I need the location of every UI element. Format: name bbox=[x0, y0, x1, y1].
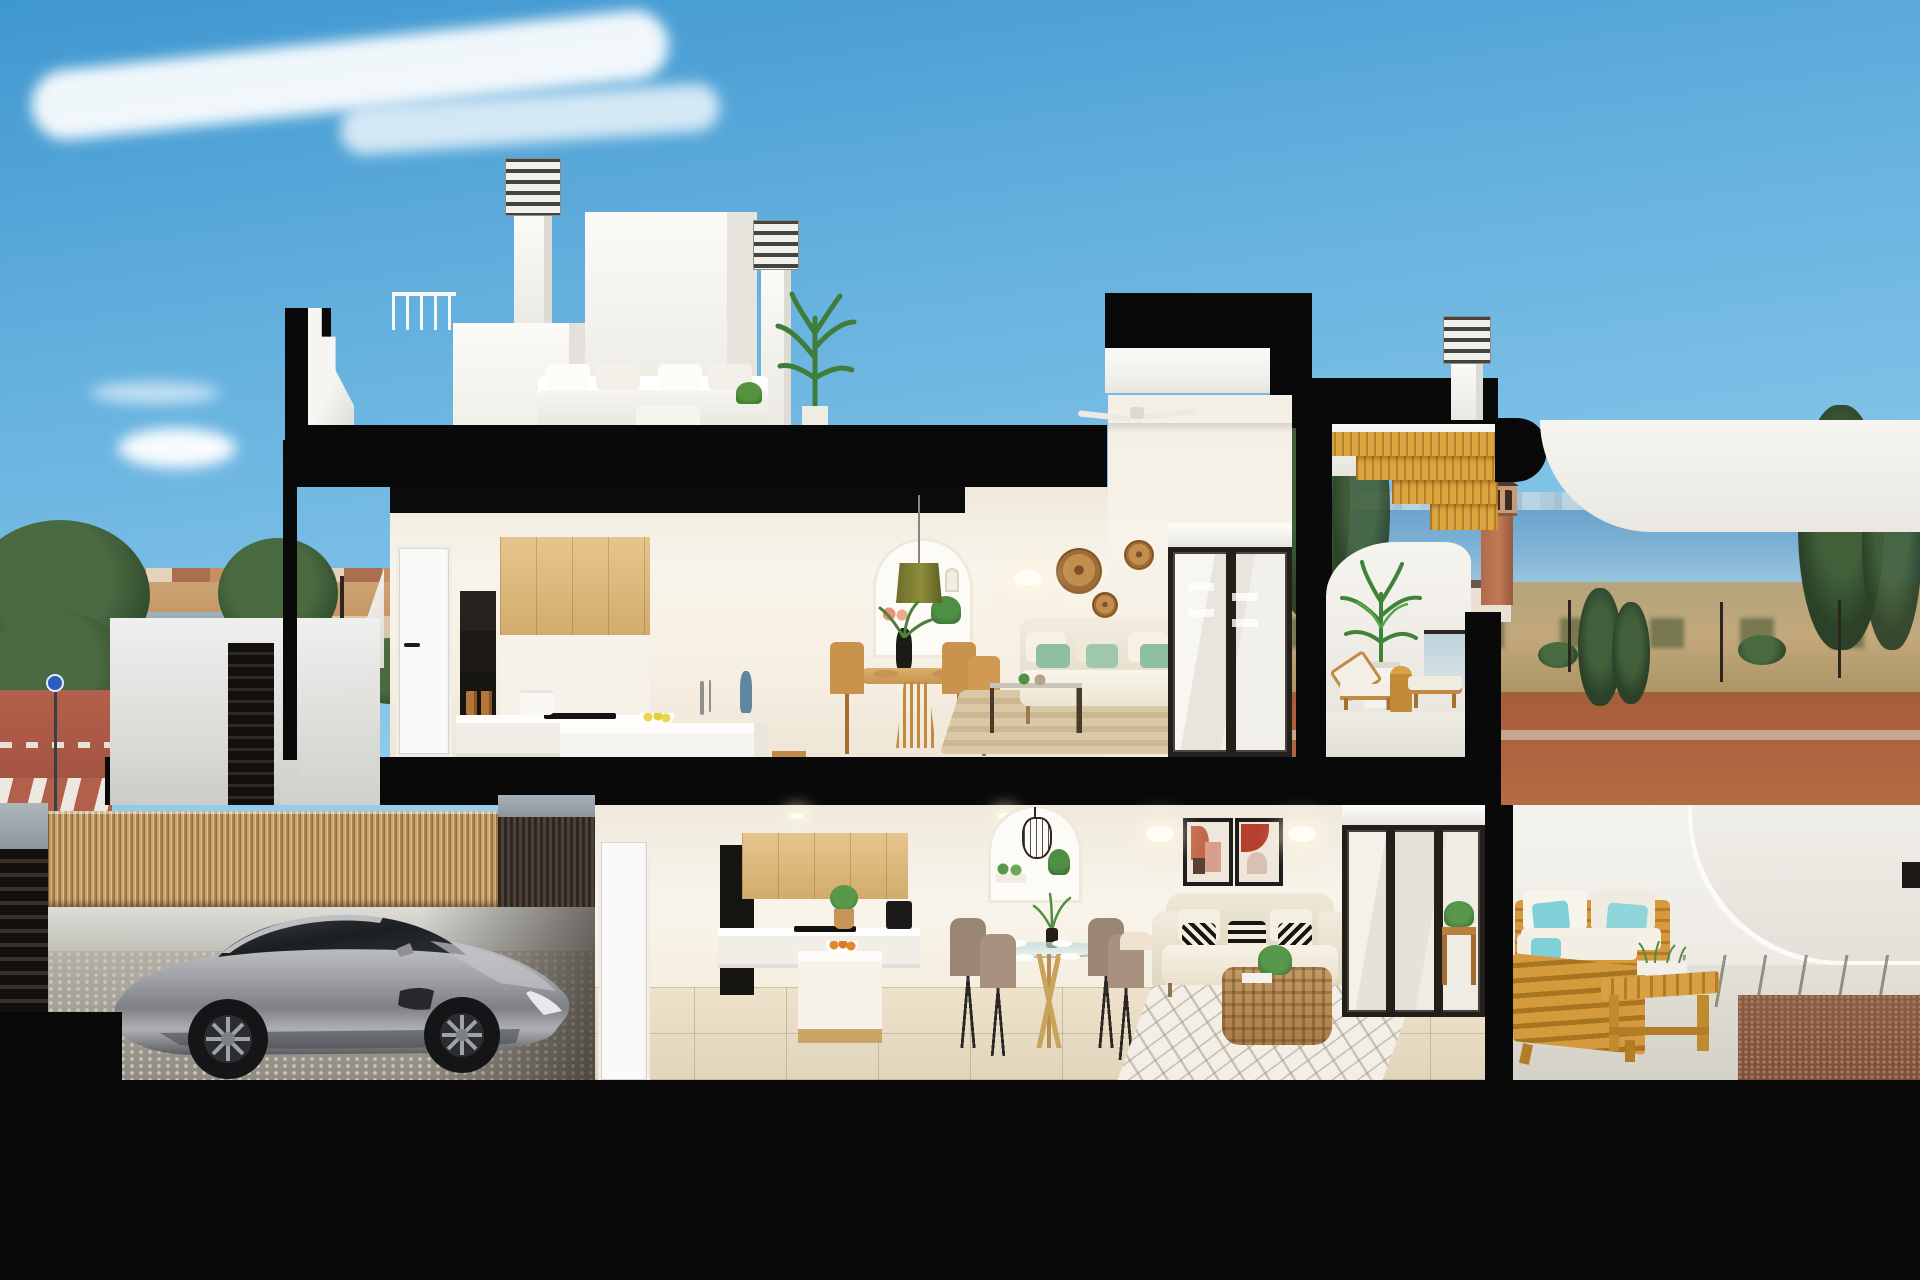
wall-niche bbox=[1902, 862, 1920, 888]
car-side-vent bbox=[398, 988, 434, 1010]
upholstered-chair bbox=[980, 934, 1016, 1056]
louvered-gate bbox=[228, 643, 274, 805]
gravel-bed bbox=[1738, 995, 1920, 1083]
lounger-legs bbox=[1414, 694, 1456, 708]
curb-dashes bbox=[0, 742, 120, 748]
entrance bbox=[110, 560, 390, 805]
faucet bbox=[700, 681, 704, 715]
ground-base bbox=[0, 1080, 1920, 1280]
storage-basket bbox=[1116, 940, 1156, 998]
door-mullion bbox=[1386, 825, 1395, 1017]
chimney-right bbox=[1443, 316, 1491, 420]
pendant-lamp bbox=[896, 563, 942, 603]
concrete-cap bbox=[498, 795, 595, 817]
sports-car bbox=[100, 883, 578, 1083]
cut-sliver-upper-left bbox=[283, 440, 297, 760]
cypress-tree-small bbox=[1612, 602, 1650, 704]
side-table-plant bbox=[1442, 901, 1476, 985]
table-frame bbox=[1442, 927, 1476, 985]
niche-plant-sprig bbox=[1048, 849, 1070, 875]
table-decor bbox=[1016, 673, 1050, 685]
bench-stretcher bbox=[1609, 1027, 1709, 1035]
upper-door bbox=[396, 545, 452, 757]
lower-floor bbox=[510, 805, 1485, 1083]
lower-door bbox=[598, 839, 650, 1083]
table-book bbox=[1242, 973, 1272, 983]
rattan-wall-basket bbox=[1056, 548, 1102, 594]
fan-hub bbox=[1130, 407, 1144, 419]
ceiling-downlight bbox=[790, 813, 804, 819]
bench-legs bbox=[1609, 995, 1709, 1051]
neighbour-curved-roof bbox=[1540, 420, 1920, 532]
pendant-cord bbox=[918, 495, 920, 565]
lantern-cord bbox=[1034, 807, 1036, 817]
cloud-wisp bbox=[90, 382, 220, 404]
island bbox=[798, 951, 882, 1043]
sofa-cushion-green bbox=[1086, 644, 1118, 668]
street-lantern bbox=[1568, 600, 1571, 672]
dining-vase bbox=[896, 628, 912, 672]
fan-room-parapet bbox=[1105, 348, 1270, 393]
centerpiece bbox=[1032, 890, 1072, 948]
right-terrace bbox=[1513, 805, 1920, 1083]
stair-step bbox=[1326, 432, 1498, 456]
upper-kitchen bbox=[452, 513, 872, 757]
lantern-cage bbox=[1022, 817, 1052, 859]
chimney-cap bbox=[1443, 316, 1491, 364]
stepped-parapet bbox=[308, 308, 354, 438]
shrub bbox=[1738, 635, 1786, 665]
upper-sliding-door bbox=[1168, 523, 1292, 757]
traffic-sign bbox=[46, 674, 64, 692]
cooking-pot bbox=[520, 693, 554, 715]
orange-bowl bbox=[826, 941, 858, 953]
lounger-cushion bbox=[1408, 676, 1462, 690]
round-stool bbox=[888, 965, 916, 1035]
wall-sconce bbox=[1146, 826, 1174, 842]
door-mullion bbox=[1226, 547, 1236, 757]
niche-plants bbox=[996, 861, 1026, 883]
red-sidewalk bbox=[0, 690, 120, 780]
lemon-bowl bbox=[640, 713, 674, 725]
lounger-legs bbox=[1344, 698, 1390, 710]
wall-cabinets bbox=[742, 833, 908, 899]
ground-base-left bbox=[0, 1012, 122, 1092]
wicker-coffee-table bbox=[1222, 967, 1332, 1045]
stepped-ceiling-soffit bbox=[390, 487, 965, 513]
fan-blade bbox=[1144, 408, 1196, 419]
roller-blind bbox=[1342, 805, 1485, 825]
arch-ornament bbox=[945, 568, 959, 592]
chimney-shaft bbox=[1451, 364, 1483, 420]
wall-sconce bbox=[1014, 570, 1042, 586]
cut-edge-terrace-right bbox=[1465, 612, 1501, 778]
roof-sofa-cushion bbox=[596, 364, 640, 390]
basket-pot bbox=[834, 909, 854, 929]
coffee-machine bbox=[886, 901, 912, 929]
roof-sofa-cushion bbox=[658, 364, 702, 390]
upper-terrace bbox=[1332, 480, 1465, 778]
wall-sconce bbox=[1288, 826, 1316, 842]
sun-lounger bbox=[1334, 658, 1398, 712]
chimney-cap bbox=[753, 220, 799, 270]
concrete-cap bbox=[0, 803, 48, 849]
lantern-pendant bbox=[1022, 815, 1048, 857]
street-lantern bbox=[1838, 600, 1841, 678]
plant-leaves bbox=[1444, 901, 1474, 927]
street-lantern bbox=[1720, 602, 1723, 682]
cloud-puff bbox=[118, 428, 236, 468]
sofa-leg bbox=[1519, 1043, 1533, 1065]
bud-vase bbox=[740, 671, 752, 713]
wall-art bbox=[1235, 818, 1283, 886]
fan-blade bbox=[1078, 410, 1130, 421]
spice-jars bbox=[466, 691, 496, 715]
lower-sliding-doors bbox=[1342, 805, 1485, 1017]
door-handle bbox=[404, 643, 420, 647]
table-pedestal bbox=[896, 682, 936, 748]
cut-edge-lower-right bbox=[1485, 805, 1513, 1083]
roof-railing bbox=[392, 292, 456, 330]
rattan-wall-basket bbox=[1092, 592, 1118, 618]
upper-floor bbox=[390, 395, 1292, 757]
sun-lounger bbox=[1408, 662, 1464, 710]
plant-leaves bbox=[830, 885, 858, 911]
art-shape bbox=[1247, 852, 1267, 874]
sofa-cushion-green bbox=[1036, 644, 1070, 668]
terrace-floor bbox=[1326, 712, 1471, 758]
roller-blind bbox=[1168, 523, 1292, 547]
throw-blanket bbox=[1120, 932, 1152, 950]
stair-step bbox=[1356, 456, 1498, 480]
table-legs-wood bbox=[1016, 954, 1082, 1048]
roof-sofa-cushion bbox=[546, 364, 590, 390]
art-shape bbox=[1193, 858, 1205, 874]
dining-chair bbox=[856, 656, 888, 756]
shrub bbox=[1538, 642, 1578, 668]
art-shape bbox=[1205, 842, 1221, 872]
chimney-cap bbox=[505, 158, 561, 216]
basket-plant bbox=[830, 885, 858, 929]
timber-bench-table bbox=[1601, 965, 1719, 1057]
bench-planter bbox=[1637, 951, 1687, 975]
art-shape bbox=[1241, 824, 1269, 852]
render-canvas: 3D cutaway cross-section render of a mod… bbox=[0, 0, 1920, 1280]
lower-kitchen bbox=[710, 833, 940, 1083]
wall-art bbox=[1183, 818, 1233, 886]
hob bbox=[544, 713, 616, 719]
table-plant bbox=[1258, 945, 1292, 975]
arched-niche bbox=[988, 805, 1082, 903]
ceiling-fan bbox=[1078, 403, 1198, 425]
upper-coffee-table bbox=[990, 683, 1082, 733]
wall-cabinets bbox=[500, 537, 650, 635]
glass-reflection bbox=[1188, 583, 1214, 591]
rattan-wall-basket bbox=[1124, 540, 1154, 570]
